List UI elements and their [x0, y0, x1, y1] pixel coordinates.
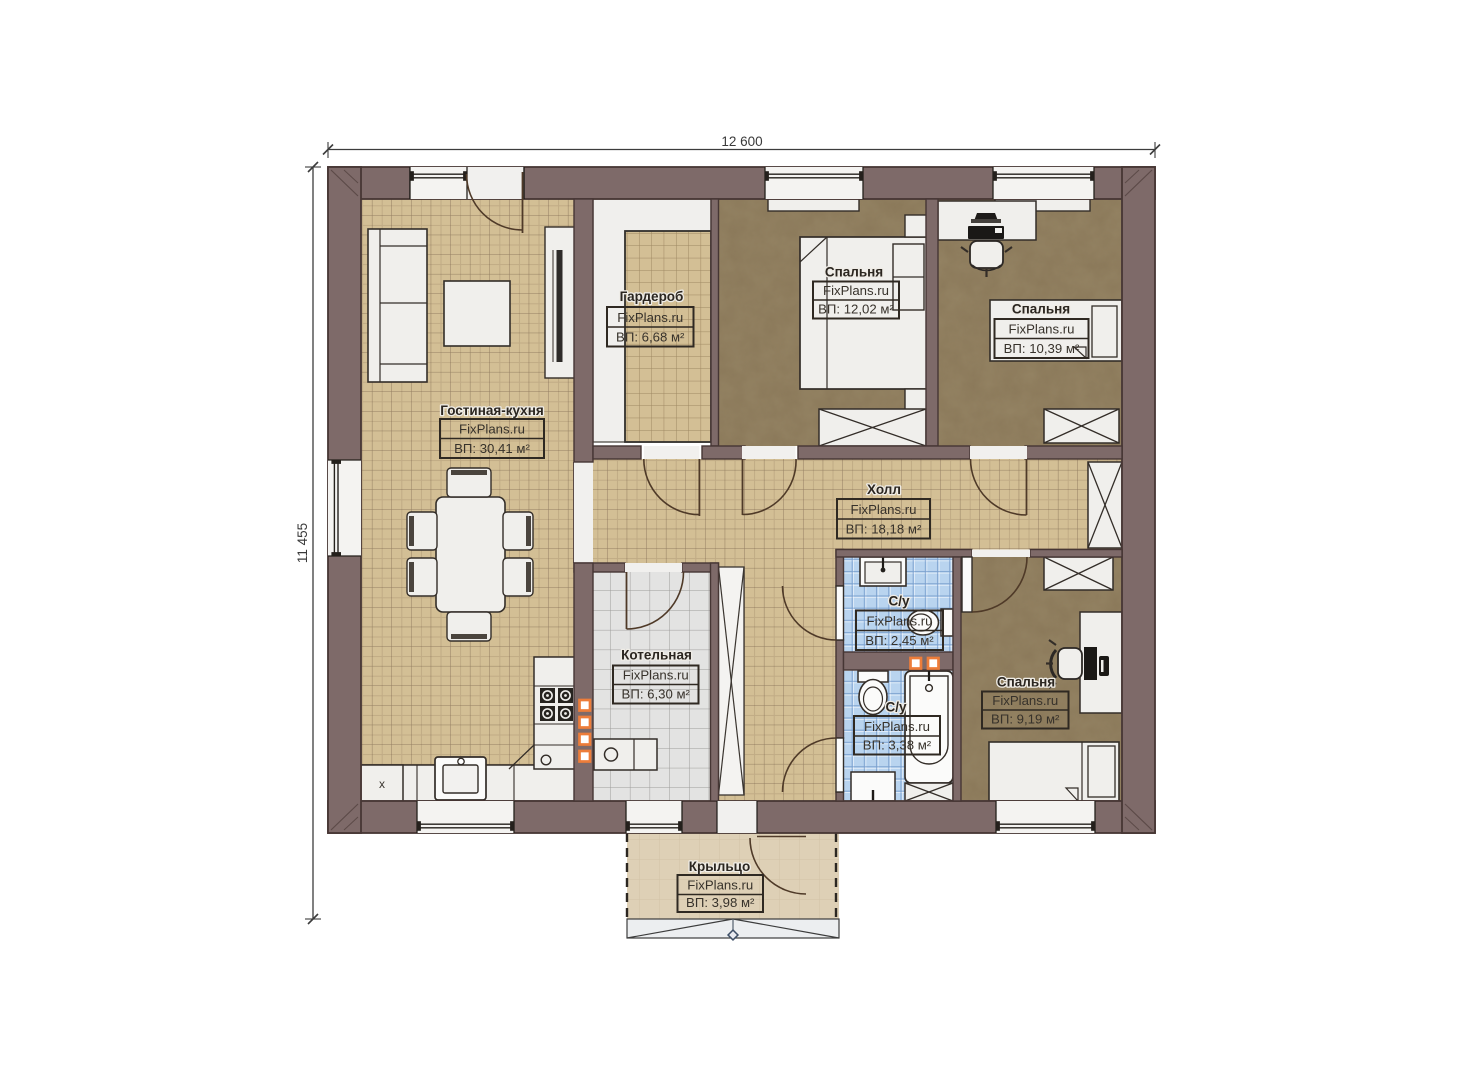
svg-text:Спальня: Спальня [1012, 302, 1070, 317]
svg-text:ВП: 6,30 м²: ВП: 6,30 м² [622, 686, 691, 701]
svg-text:FixPlans.ru: FixPlans.ru [867, 613, 933, 628]
svg-text:ВП: 2,45 м²: ВП: 2,45 м² [865, 633, 934, 648]
svg-text:FixPlans.ru: FixPlans.ru [992, 693, 1058, 708]
svg-text:FixPlans.ru: FixPlans.ru [459, 421, 525, 436]
svg-text:Холл: Холл [867, 482, 901, 497]
svg-text:x: x [379, 777, 385, 791]
svg-text:FixPlans.ru: FixPlans.ru [864, 719, 930, 734]
svg-text:FixPlans.ru: FixPlans.ru [617, 310, 683, 325]
svg-text:ВП: 10,39 м²: ВП: 10,39 м² [1004, 341, 1080, 356]
svg-text:Котельная: Котельная [621, 648, 692, 663]
svg-text:FixPlans.ru: FixPlans.ru [687, 877, 753, 892]
svg-text:С/у: С/у [885, 700, 907, 715]
svg-text:Спальня: Спальня [825, 265, 883, 280]
svg-text:ВП: 9,19 м²: ВП: 9,19 м² [991, 711, 1060, 726]
svg-text:С/у: С/у [888, 594, 910, 609]
svg-text:FixPlans.ru: FixPlans.ru [823, 283, 889, 298]
svg-text:12 600: 12 600 [721, 134, 762, 149]
svg-text:ВП: 18,18 м²: ВП: 18,18 м² [846, 521, 922, 536]
svg-text:ВП: 6,68 м²: ВП: 6,68 м² [616, 329, 685, 344]
svg-text:ВП: 30,41 м²: ВП: 30,41 м² [454, 441, 530, 456]
svg-text:FixPlans.ru: FixPlans.ru [623, 667, 689, 682]
svg-text:11 455: 11 455 [295, 523, 310, 563]
svg-text:Гардероб: Гардероб [620, 289, 684, 304]
svg-text:Спальня: Спальня [997, 675, 1055, 690]
svg-text:ВП: 3,98 м²: ВП: 3,98 м² [686, 895, 755, 910]
svg-text:Крыльцо: Крыльцо [689, 859, 750, 874]
svg-text:FixPlans.ru: FixPlans.ru [851, 502, 917, 517]
svg-text:Гостиная-кухня: Гостиная-кухня [440, 403, 543, 418]
svg-text:FixPlans.ru: FixPlans.ru [1009, 321, 1075, 336]
svg-text:ВП: 3,38 м²: ВП: 3,38 м² [863, 737, 932, 752]
svg-text:ВП: 12,02 м²: ВП: 12,02 м² [818, 301, 894, 316]
